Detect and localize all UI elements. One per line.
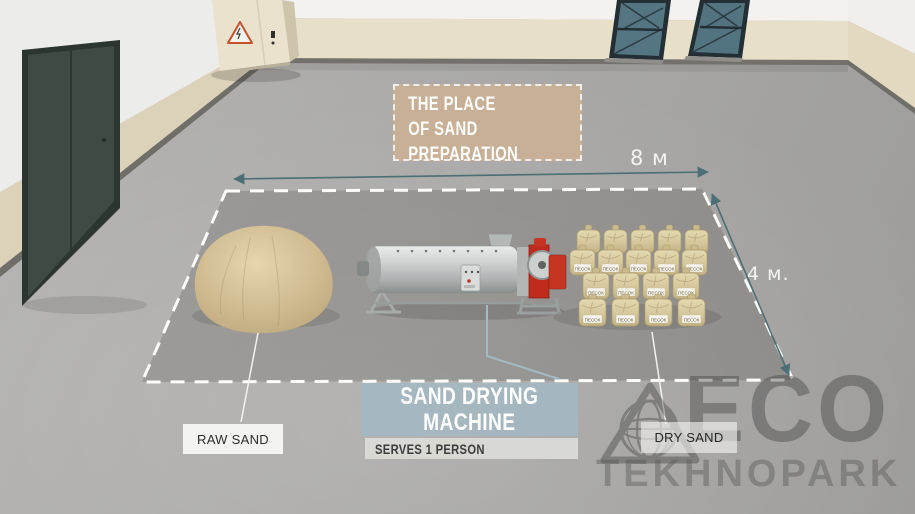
zone-width-label: 8 м [630, 146, 669, 170]
bag-label: ПЕСОК [585, 318, 601, 323]
bag-label: ПЕСОК [618, 318, 634, 323]
sand-bag: ПЕСОК [645, 294, 672, 326]
machine-subtitle: SERVES 1 PERSON [365, 438, 578, 459]
zone-title-line-3: PREPARATION [408, 142, 539, 167]
watermark-subbrand: TEKHNOPARK [596, 455, 901, 493]
raw-sand-label: RAW SAND [183, 424, 283, 454]
dry-sand-label: DRY SAND [641, 422, 737, 453]
sand-bag: ПЕСОК [579, 294, 606, 326]
zone-depth-label: 4 м. [747, 263, 790, 285]
bag-label: ПЕСОК [575, 267, 591, 272]
zone-title-line-2: OF SAND [408, 117, 539, 142]
bag-label: ПЕСОК [684, 318, 700, 323]
bag-label: ПЕСОК [651, 318, 667, 323]
zone-title-line-1: THE PLACE [408, 92, 539, 117]
machine-title-line-2: MACHINE [400, 410, 538, 436]
cabinet-handle-icon [271, 31, 275, 38]
bag-label: ПЕСОК [631, 267, 647, 272]
sand-bag: ПЕСОК [678, 294, 705, 326]
bag-label: ПЕСОК [659, 267, 675, 272]
sand-drying-machine [357, 234, 566, 320]
door-handle-icon [102, 138, 106, 142]
machine-label: SAND DRYING MACHINE [361, 383, 578, 436]
zone-title-card: THE PLACE OF SAND PREPARATION [393, 84, 582, 161]
machine-control-box [461, 265, 480, 291]
warehouse-scene: ПЕСОКПЕСОКПЕСОКПЕСОКПЕСОКПЕСОКПЕСОКПЕСОК… [0, 0, 915, 514]
machine-drum [368, 246, 518, 293]
sand-bag: ПЕСОК [612, 294, 639, 326]
bag-label: ПЕСОК [603, 267, 619, 272]
back-wall [248, 0, 848, 72]
machine-title-line-1: SAND DRYING [400, 384, 538, 410]
